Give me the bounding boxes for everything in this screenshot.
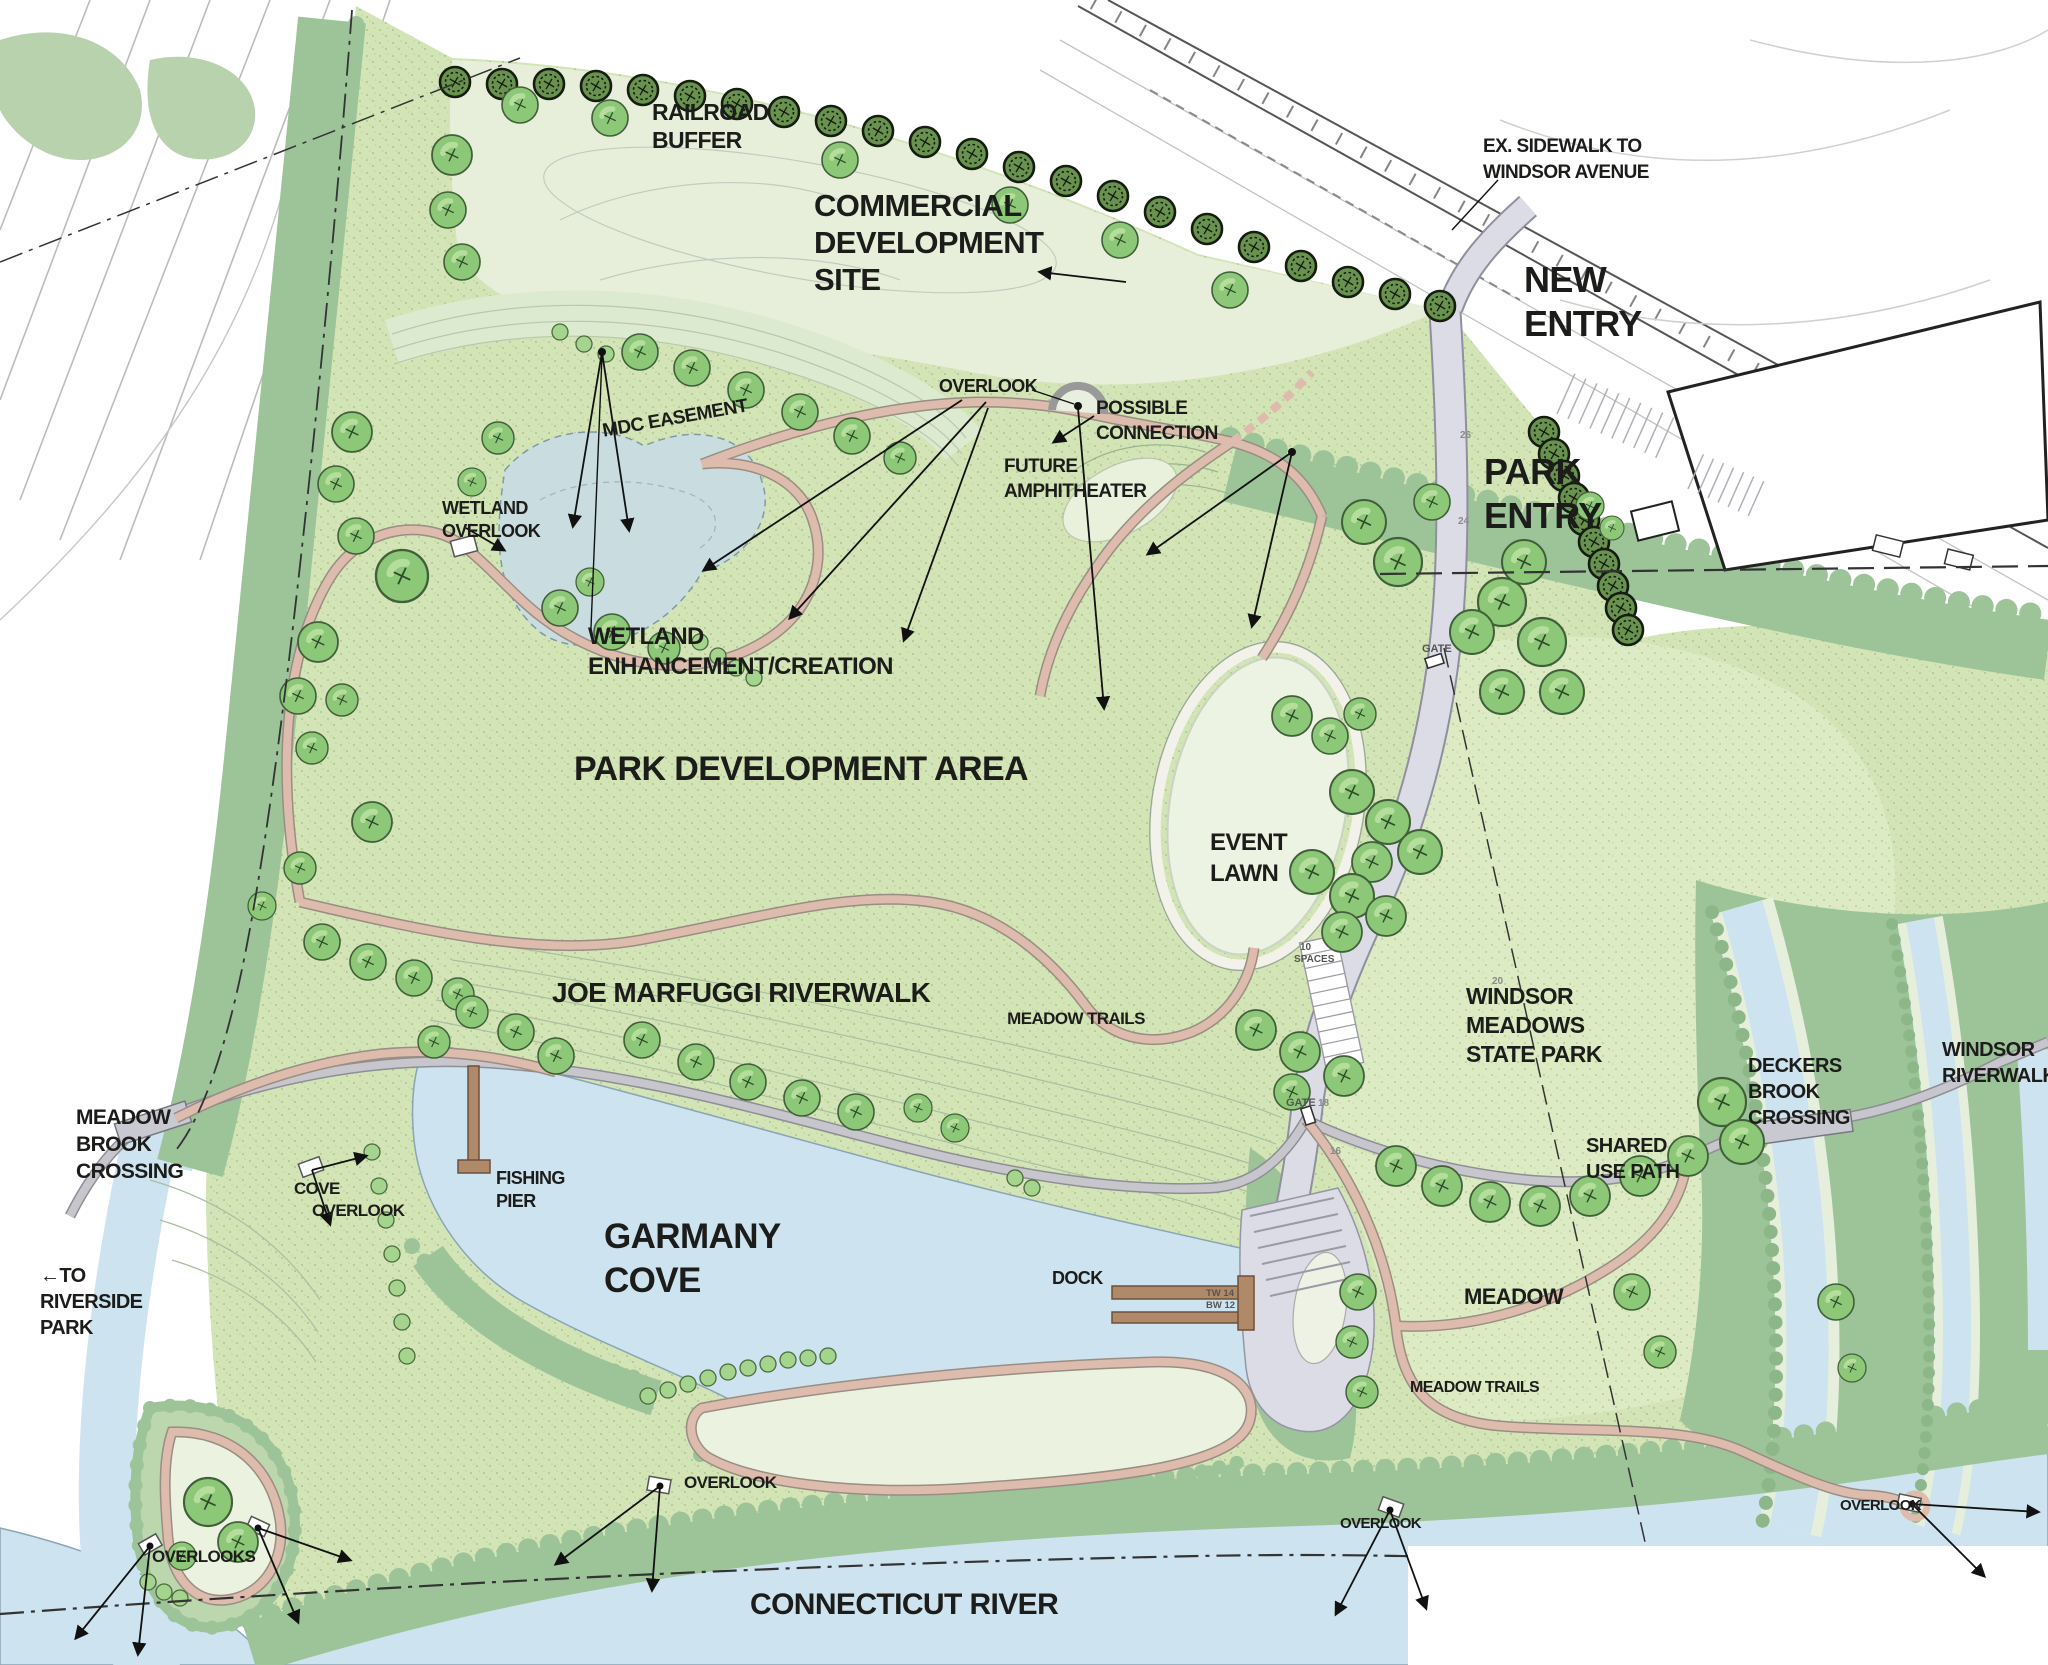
contour-tag: 24 <box>1458 516 1470 527</box>
label-overlook-top: OVERLOOK <box>939 376 1038 396</box>
label-commercial-site: DEVELOPMENT <box>814 225 1044 260</box>
label-joe-marfuggi-riverwalk: JOE MARFUGGI RIVERWALK <box>552 977 931 1008</box>
label-cove-overlook: COVE <box>294 1179 340 1198</box>
label-gate-north: GATE <box>1422 643 1452 655</box>
label-deckers-brook: BROOK <box>1748 1081 1821 1103</box>
label-commercial-site: COMMERCIAL <box>814 188 1022 223</box>
label-future-amphitheater: FUTURE <box>1004 456 1077 477</box>
label-garmany-cove: GARMANY <box>604 1217 781 1256</box>
label-event-lawn: EVENT <box>1210 829 1288 856</box>
label-meadow-trails-east: MEADOW TRAILS <box>1410 1379 1540 1396</box>
label-commercial-site: SITE <box>814 262 881 297</box>
label-possible-connection: POSSIBLE <box>1096 398 1187 419</box>
contour-tag: 26 <box>1460 430 1472 441</box>
label-meadow: MEADOW <box>1464 1284 1564 1309</box>
label-overlooks-sw: OVERLOOKS <box>152 1547 255 1566</box>
label-railroad-buffer: BUFFER <box>652 127 743 153</box>
label-to-riverside-park: RIVERSIDE <box>40 1291 143 1313</box>
label-overlook-lawn: OVERLOOK <box>684 1473 778 1492</box>
label-ex-sidewalk: EX. SIDEWALK TO <box>1483 136 1642 157</box>
label-shared-use-path: SHARED <box>1586 1135 1667 1157</box>
label-meadow-brook: BROOK <box>76 1133 152 1156</box>
label-event-lawn: LAWN <box>1210 860 1278 887</box>
label-ex-sidewalk: WINDSOR AVENUE <box>1483 162 1649 183</box>
park-master-plan-map: RAILROAD BUFFER COMMERCIAL DEVELOPMENT S… <box>0 0 2048 1665</box>
label-windsor-meadows: WINDSOR <box>1466 983 1574 1009</box>
label-to-riverside-park: ←TO <box>40 1265 86 1287</box>
label-shared-use-path: USE PATH <box>1586 1161 1680 1183</box>
edge-water <box>2035 1050 2046 1350</box>
label-park-entry: PARK <box>1484 451 1582 492</box>
label-connecticut-river: CONNECTICUT RIVER <box>750 1588 1059 1621</box>
label-possible-connection: CONNECTION <box>1096 423 1218 444</box>
label-fishing-pier: PIER <box>496 1191 536 1211</box>
contour-tag: 20 <box>1492 976 1504 987</box>
label-overlook-boat: OVERLOOK <box>1340 1515 1422 1532</box>
label-garmany-cove: COVE <box>604 1261 701 1300</box>
label-gate-south: GATE <box>1286 1097 1316 1109</box>
label-railroad-buffer: RAILROAD <box>652 99 769 125</box>
label-cove-overlook: OVERLOOK <box>312 1201 406 1220</box>
label-new-entry: NEW <box>1524 259 1607 300</box>
label-parking-spaces: SPACES <box>1294 954 1335 965</box>
label-wetland-overlook: WETLAND <box>442 498 528 518</box>
label-meadow-trails-west: MEADOW TRAILS <box>1007 1009 1145 1028</box>
label-future-amphitheater: AMPHITHEATER <box>1004 481 1147 502</box>
label-wetland-enhancement: WETLAND <box>588 623 704 650</box>
label-deckers-brook: DECKERS <box>1748 1055 1842 1077</box>
label-deckers-brook: CROSSING <box>1748 1107 1850 1129</box>
label-wetland-enhancement: ENHANCEMENT/CREATION <box>588 653 893 680</box>
label-windsor-riverwalk: WINDSOR <box>1942 1039 2036 1061</box>
label-dock: DOCK <box>1052 1268 1103 1288</box>
label-parking-spaces: 10 <box>1300 942 1312 953</box>
contour-tag: 16 <box>1330 1146 1342 1157</box>
label-windsor-riverwalk: RIVERWALK <box>1942 1065 2048 1087</box>
label-new-entry: ENTRY <box>1524 303 1642 344</box>
label-park-entry: ENTRY <box>1484 495 1602 536</box>
blank-corner <box>1408 1546 2048 1665</box>
label-overlook-east: OVERLOOK <box>1840 1497 1922 1514</box>
label-meadow-brook: CROSSING <box>76 1160 183 1183</box>
label-fishing-pier: FISHING <box>496 1168 565 1188</box>
label-to-riverside-park: PARK <box>40 1317 94 1339</box>
label-park-development-area: PARK DEVELOPMENT AREA <box>574 750 1028 788</box>
label-meadow-brook: MEADOW <box>76 1106 171 1129</box>
label-wall-tag: BW 12 <box>1206 1300 1235 1311</box>
label-windsor-meadows: MEADOWS <box>1466 1012 1585 1038</box>
label-windsor-meadows: STATE PARK <box>1466 1041 1603 1067</box>
label-wetland-overlook: OVERLOOK <box>442 521 541 541</box>
label-wall-tag: TW 14 <box>1206 1288 1235 1299</box>
contour-tag: 18 <box>1318 1098 1330 1109</box>
